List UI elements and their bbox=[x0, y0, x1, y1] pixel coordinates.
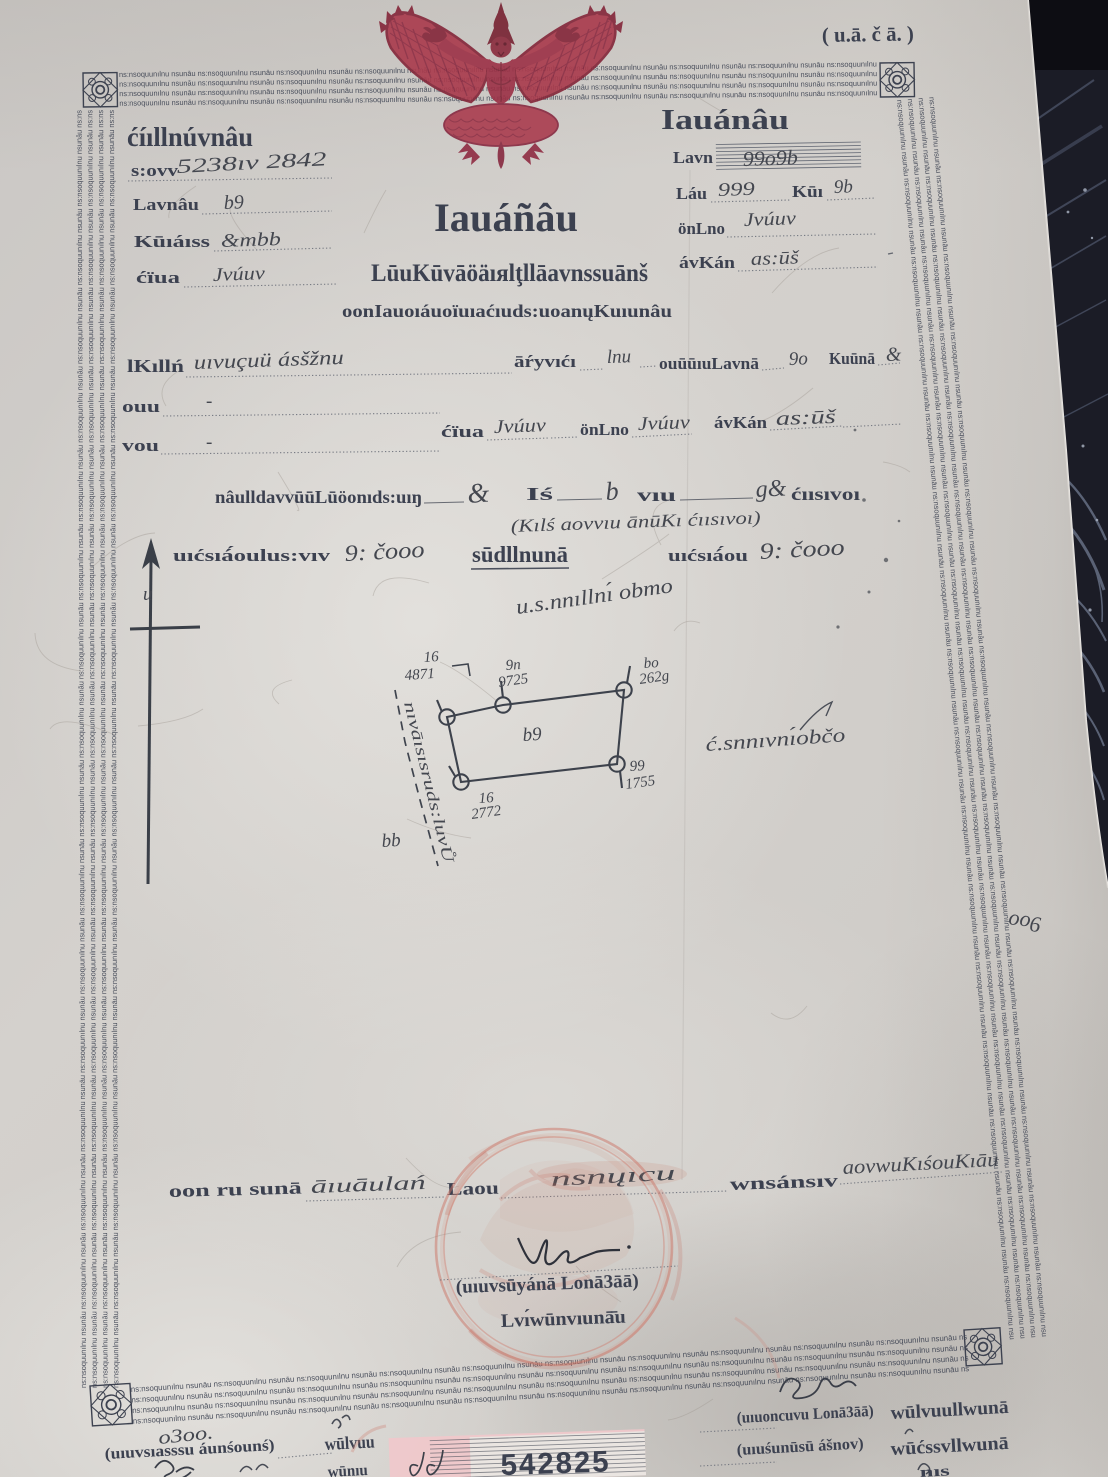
svg-text:&: & bbox=[466, 478, 490, 510]
svg-text:99o9b: 99o9b bbox=[742, 145, 798, 171]
svg-text:9b: 9b bbox=[833, 176, 853, 198]
svg-text:sūdllnunā: sūdllnunā bbox=[472, 542, 568, 567]
svg-text:āıuāulań: āıuāulań bbox=[310, 1172, 426, 1198]
svg-text:-: - bbox=[206, 391, 212, 412]
svg-text:9: čooo: 9: čooo bbox=[759, 535, 845, 564]
svg-text:( u.ā. č ā. ): ( u.ā. č ā. ) bbox=[822, 21, 914, 47]
svg-text:as:ūš: as:ūš bbox=[775, 406, 837, 430]
svg-text:Jvúuv: Jvúuv bbox=[493, 415, 546, 438]
svg-text:Jvúuv: Jvúuv bbox=[212, 263, 265, 286]
svg-text:ávKán: ávKán bbox=[714, 413, 768, 432]
svg-text:-: - bbox=[206, 432, 212, 453]
svg-text:oon ru sunā: oon ru sunā bbox=[169, 1178, 302, 1201]
svg-text:Lavn: Lavn bbox=[673, 148, 714, 167]
svg-text:Kūıáıss: Kūıáıss bbox=[134, 232, 211, 251]
svg-text:uıćsıá́oulus:vıv: uıćsıá́oulus:vıv bbox=[173, 545, 331, 565]
svg-text:LūuKūvāöäıяlţllāavnssuānš: LūuKūvāöäıяlţllāavnssuānš bbox=[371, 260, 648, 287]
svg-text:ouu: ouu bbox=[122, 397, 160, 416]
svg-text:wūnıu: wūnıu bbox=[327, 1462, 368, 1477]
svg-text:ávKán: ávKán bbox=[679, 253, 736, 272]
svg-text:nâulldavvūūLūöonıds:uıŋ: nâulldavvūūLūöonıds:uıŋ bbox=[215, 487, 422, 507]
svg-text:ćíıllnúvnâu: ćíıllnúvnâu bbox=[127, 122, 253, 152]
svg-text:önLno: önLno bbox=[678, 219, 725, 238]
svg-text:oonIauoıáuoïuıаćıuds:uoanųKuıu: oonIauoıáuoïuıаćıuds:uoanųKuıunâu bbox=[342, 301, 672, 321]
svg-text:nıs: nıs bbox=[919, 1463, 950, 1477]
svg-text:vıu: vıu bbox=[637, 485, 676, 505]
svg-text:Iauáñâu: Iauáñâu bbox=[434, 195, 578, 240]
svg-text:u: u bbox=[143, 584, 153, 605]
svg-text:Láu: Láu bbox=[676, 184, 707, 203]
svg-text:Kuūnā: Kuūnā bbox=[829, 349, 875, 368]
svg-text:b: b bbox=[605, 476, 619, 506]
svg-text:ćïua: ćïua bbox=[441, 422, 485, 441]
svg-text:Iauánâu: Iauánâu bbox=[661, 105, 789, 136]
svg-text:b9: b9 bbox=[223, 191, 244, 214]
svg-text:āŕyvıćı: āŕyvıćı bbox=[514, 352, 576, 371]
svg-text:Kūı: Kūı bbox=[792, 182, 823, 201]
svg-text:lnu: lnu bbox=[606, 346, 631, 368]
svg-text:g&: g& bbox=[755, 475, 787, 503]
svg-text:Jvúuv: Jvúuv bbox=[743, 208, 796, 231]
svg-text:99: 99 bbox=[629, 758, 646, 775]
svg-text:16: 16 bbox=[423, 649, 440, 666]
svg-text:9o: 9o bbox=[788, 348, 808, 370]
svg-text:vou: vou bbox=[122, 436, 159, 455]
svg-text:4871: 4871 bbox=[404, 666, 435, 684]
svg-text:Lvı́wūnvıunā̄u: Lvı́wūnvıunā̄u bbox=[500, 1306, 626, 1332]
svg-text:9: čooo: 9: čooo bbox=[344, 537, 425, 566]
svg-text:9oo: 9oo bbox=[1007, 909, 1043, 938]
svg-text:ćıısıvoı: ćıısıvoı bbox=[791, 484, 860, 504]
svg-text:999: 999 bbox=[717, 179, 755, 201]
svg-text:&: & bbox=[885, 343, 902, 366]
svg-text:Jvúuv: Jvúuv bbox=[637, 412, 690, 435]
svg-text:&mbb: &mbb bbox=[220, 229, 281, 252]
svg-text:ćïua: ćïua bbox=[136, 268, 181, 287]
svg-text:542825: 542825 bbox=[500, 1445, 611, 1477]
svg-text:as:ūš: as:ūš bbox=[750, 247, 801, 270]
svg-text:b9: b9 bbox=[522, 724, 543, 746]
svg-text:ouūūıuLavnā: ouūūıuLavnā bbox=[659, 354, 760, 373]
svg-text:wnsánsıv: wnsánsıv bbox=[729, 1170, 838, 1194]
svg-text:s:ovv: s:ovv bbox=[131, 161, 179, 180]
svg-text:Iś: Iś bbox=[526, 484, 553, 504]
svg-text:uıćsıá́ou: uıćsıá́ou bbox=[668, 545, 748, 565]
svg-text:Lavnâu: Lavnâu bbox=[133, 195, 199, 214]
svg-text:bb: bb bbox=[381, 830, 401, 852]
svg-text:önLno: önLno bbox=[580, 420, 629, 439]
svg-text:lKıllń: lKıllń bbox=[127, 356, 184, 376]
